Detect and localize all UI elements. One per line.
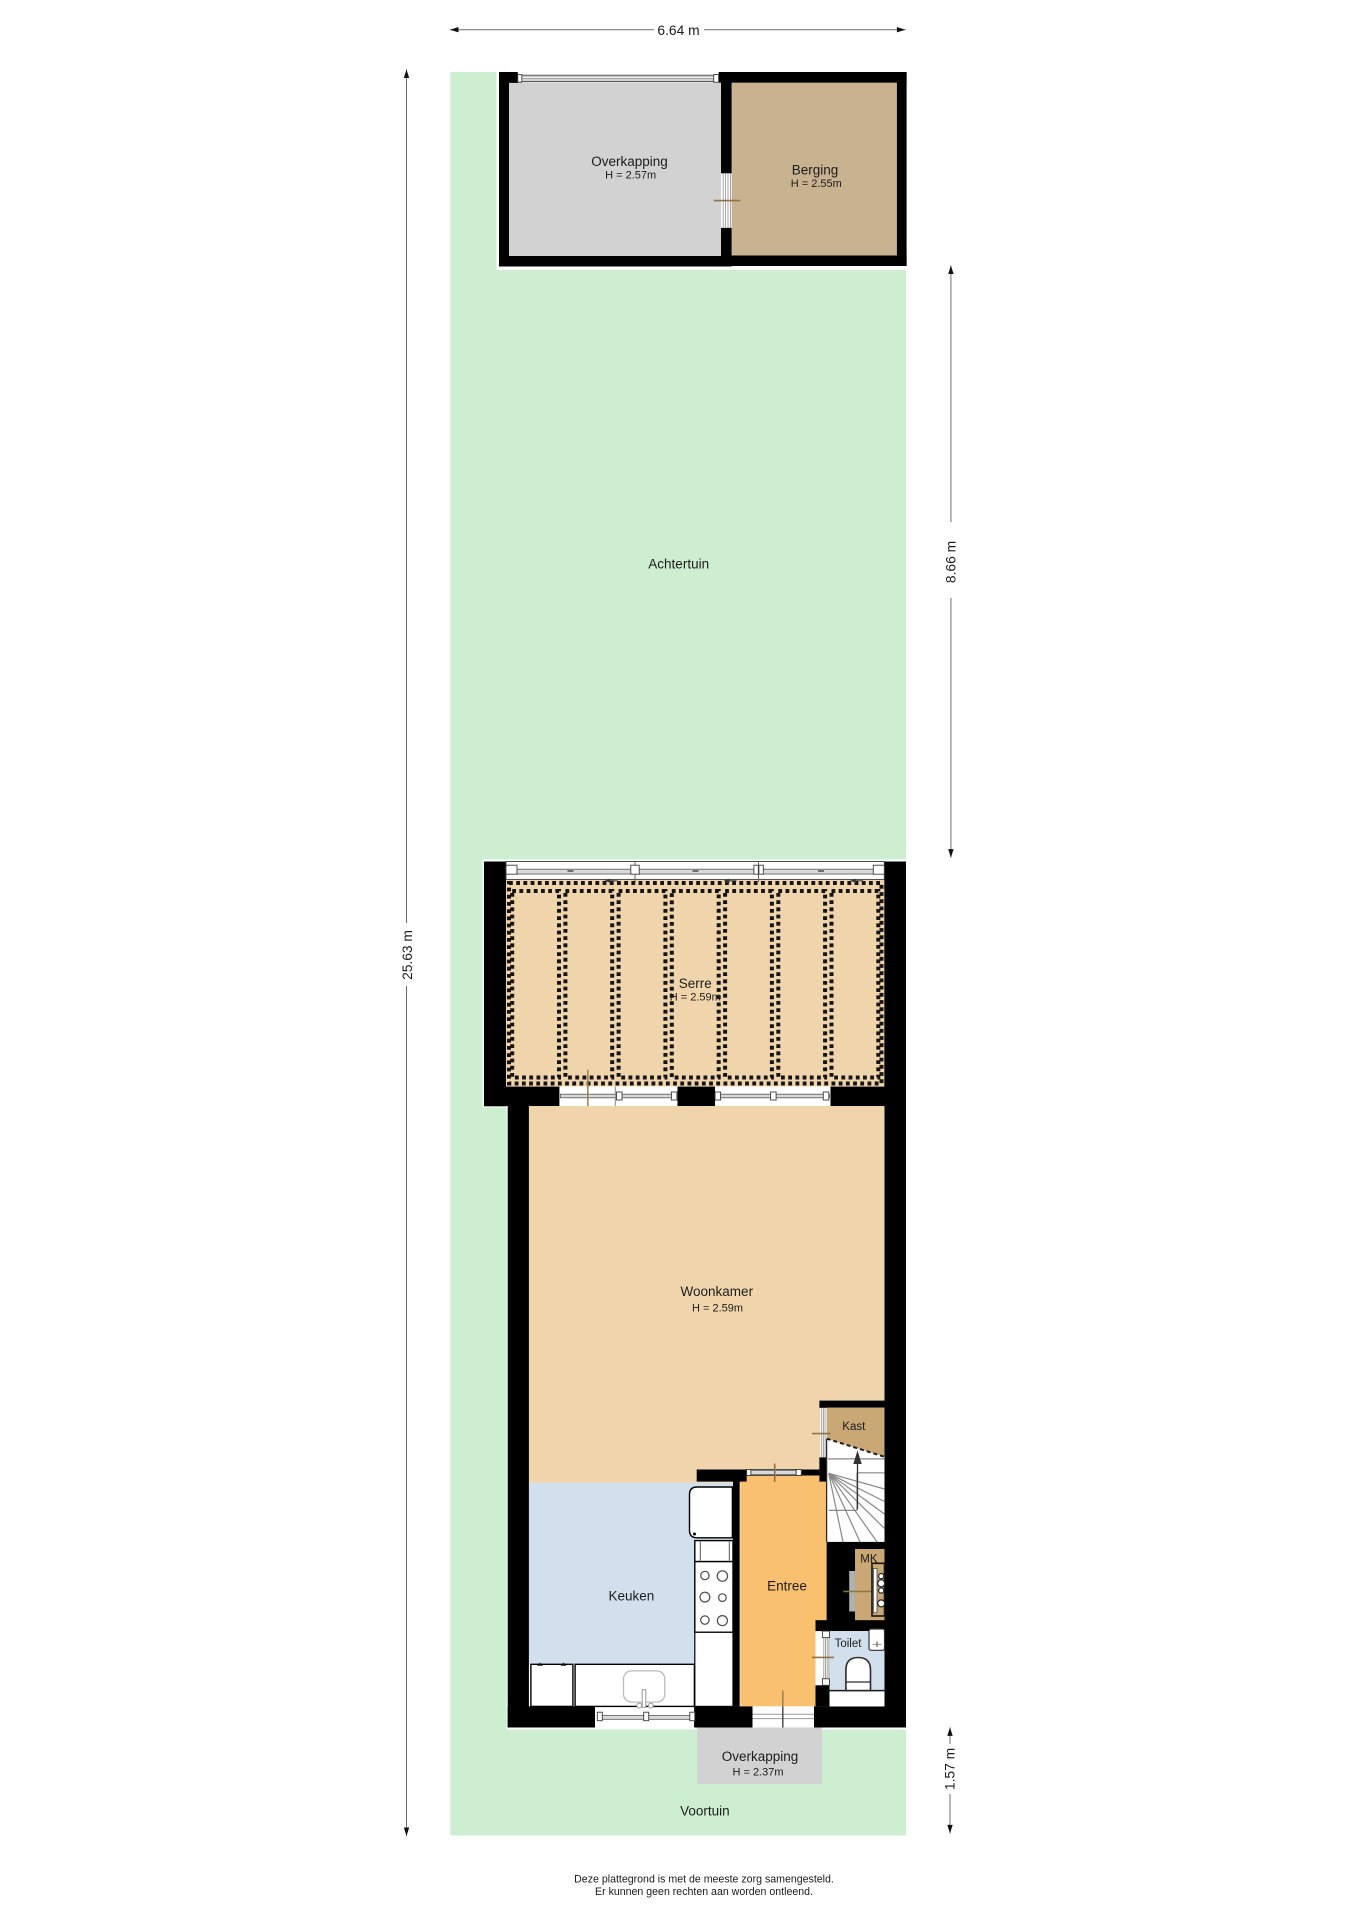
- svg-text:H = 2.59m: H = 2.59m: [692, 1303, 743, 1315]
- svg-text:6.64 m: 6.64 m: [657, 23, 699, 38]
- svg-text:Berging: Berging: [792, 162, 839, 177]
- svg-text:Kast: Kast: [842, 1421, 866, 1433]
- svg-text:25.63 m: 25.63 m: [400, 930, 415, 980]
- svg-text:Keuken: Keuken: [609, 1589, 655, 1604]
- svg-text:H = 2.57m: H = 2.57m: [605, 170, 656, 182]
- svg-text:Deze plattegrond is met de mee: Deze plattegrond is met de meeste zorg s…: [574, 1874, 834, 1886]
- svg-text:Achtertuin: Achtertuin: [648, 556, 709, 571]
- svg-text:H = 2.59m: H = 2.59m: [670, 992, 721, 1004]
- svg-text:Woonkamer: Woonkamer: [681, 1284, 754, 1299]
- svg-text:Overkapping: Overkapping: [722, 1749, 799, 1764]
- svg-text:Er kunnen geen rechten aan wor: Er kunnen geen rechten aan worden ontlee…: [595, 1886, 813, 1898]
- svg-text:8.66 m: 8.66 m: [943, 541, 958, 583]
- svg-text:Toilet: Toilet: [835, 1638, 863, 1650]
- svg-text:Voortuin: Voortuin: [680, 1804, 730, 1819]
- svg-text:Overkapping: Overkapping: [591, 154, 668, 169]
- svg-text:1.57 m: 1.57 m: [943, 1748, 958, 1790]
- svg-text:H = 2.55m: H = 2.55m: [791, 178, 842, 190]
- svg-text:H = 2.37m: H = 2.37m: [732, 1766, 783, 1778]
- svg-text:Serre: Serre: [679, 976, 712, 991]
- svg-text:MK: MK: [860, 1554, 878, 1566]
- svg-text:Entree: Entree: [767, 1579, 807, 1594]
